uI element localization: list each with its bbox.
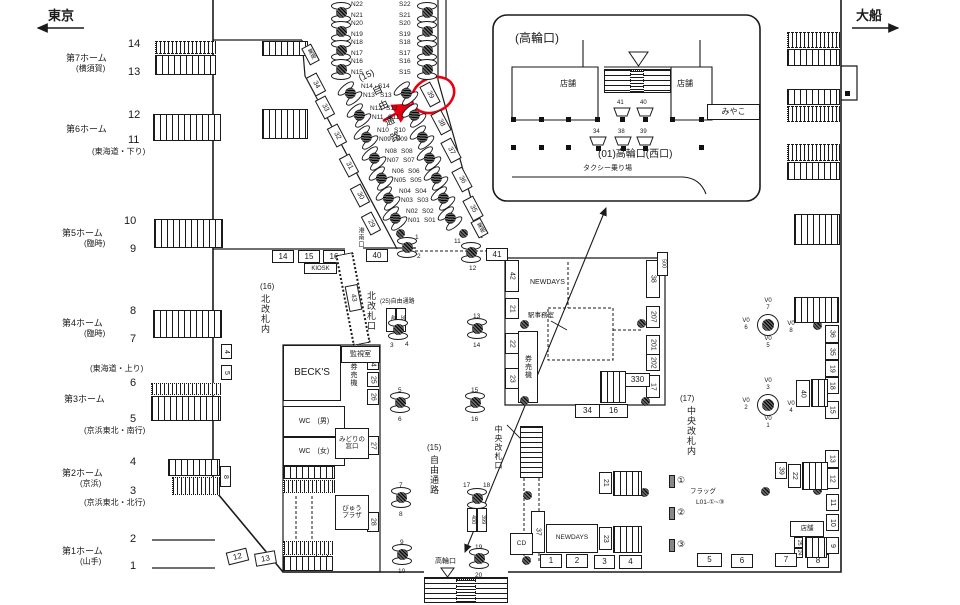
- box-label: 10: [829, 519, 836, 527]
- numbered-box: 25: [794, 537, 803, 548]
- flag-number: ①: [677, 476, 685, 485]
- text-label: 第3ホーム: [64, 394, 105, 405]
- stairs: [168, 459, 220, 476]
- pillar-core: [396, 492, 407, 503]
- pillar-square: [621, 146, 626, 151]
- room-label: 監視室: [350, 351, 371, 358]
- pillar-square: [566, 117, 571, 122]
- numbered-box: 34: [575, 404, 600, 418]
- stairs: [802, 462, 828, 490]
- stairs: [151, 383, 221, 395]
- text-label: 13: [128, 66, 140, 79]
- room: 店舗: [790, 521, 824, 537]
- numbered-box: 399: [477, 508, 487, 532]
- text-label: タクシー乗り場: [583, 165, 632, 173]
- stairs: [630, 70, 644, 92]
- room: みどりの 窓口: [335, 428, 369, 459]
- pillar-dot: [520, 320, 529, 329]
- vertical-text-label: 中央改札内: [686, 406, 695, 456]
- box-label: 37: [446, 145, 456, 155]
- pillar-core: [422, 64, 433, 75]
- box-label: 14: [279, 253, 288, 261]
- pillar-square: [643, 117, 648, 122]
- numbered-box: 22: [505, 333, 519, 354]
- vertical-text-label: 券売機: [350, 363, 357, 387]
- pillar-label: 16: [471, 417, 478, 424]
- box-label: 13: [829, 455, 836, 463]
- pillar-label: S18: [399, 40, 411, 47]
- text-label: (高輪口): [515, 31, 559, 45]
- numbered-box: 207: [646, 306, 660, 328]
- pillar-core: [470, 397, 481, 408]
- text-label: (京浜東北・南行): [84, 426, 145, 435]
- box-label: 35: [829, 348, 836, 356]
- pillar-label: N12: [370, 106, 382, 113]
- pillar-label: 15: [471, 388, 478, 395]
- stairs: [283, 541, 333, 555]
- pillar-label: N09: [379, 137, 391, 144]
- stairs: [600, 371, 626, 403]
- numbered-box: KIOSK: [304, 263, 337, 274]
- room-label: 券売機: [525, 355, 532, 379]
- stairs: [805, 537, 827, 558]
- central-gate: [520, 426, 543, 478]
- room-label: みどりの 窓口: [339, 437, 365, 450]
- vertical-text-label: 中央改札口: [494, 425, 502, 470]
- numbered-box: 26: [367, 389, 379, 405]
- box-label: 40: [373, 252, 382, 260]
- pillar-symbol: [416, 2, 438, 23]
- stairs: [794, 214, 840, 245]
- vertical-text-label: 自由通路: [429, 455, 438, 495]
- pillar-label: S04: [415, 189, 427, 196]
- text-label: 34: [593, 129, 600, 136]
- box-label: 業掲: [474, 222, 484, 234]
- numbered-box: 330: [625, 373, 650, 387]
- box-label: 18: [829, 382, 836, 390]
- takanawa-triangle: [441, 568, 454, 577]
- pillar-square: [620, 117, 625, 122]
- pillar-label: S08: [401, 149, 413, 156]
- room-label: びゅう プラザ: [342, 506, 362, 519]
- numbered-box: 4: [619, 555, 642, 569]
- text-label: NEWDAYS: [530, 279, 565, 287]
- pillar-square: [699, 117, 704, 122]
- box-label: 28: [370, 518, 377, 526]
- pillar-label: 11: [454, 239, 461, 246]
- pillar-label: S07: [403, 158, 415, 165]
- text-label: 5: [130, 413, 136, 426]
- pillar-label: N17: [351, 51, 363, 58]
- pillar-label: 10: [398, 569, 405, 576]
- box-label: 399: [479, 515, 485, 524]
- box-label: 6: [740, 557, 744, 565]
- stairs: [155, 55, 216, 75]
- text-label: フラッグ: [690, 488, 716, 496]
- numbered-box: 15: [298, 250, 320, 263]
- pillar-symbol: [416, 40, 438, 61]
- round-pillar-label: V0 8: [783, 321, 799, 335]
- pillar-label: 9: [400, 540, 404, 547]
- numbered-box: 16: [599, 404, 628, 418]
- numbered-box: 25: [367, 372, 379, 387]
- stairs: [456, 579, 476, 602]
- pillar-label: S01: [424, 218, 436, 225]
- box-label: 9: [829, 544, 836, 548]
- stairs: [787, 32, 840, 48]
- text-label: 第7ホーム: [66, 53, 107, 64]
- numbered-box: 2: [566, 554, 588, 568]
- pillar-square: [511, 117, 516, 122]
- pillar-square: [643, 146, 648, 151]
- room-label: NEWDAYS: [556, 535, 588, 542]
- pillar-label: N04: [399, 189, 411, 196]
- room: NEWDAYS: [546, 524, 598, 553]
- pillar-symbol: [390, 487, 412, 508]
- numbered-box: 10: [826, 514, 839, 531]
- pillar-label: N14: [361, 84, 373, 91]
- box-label: 31: [344, 160, 354, 170]
- room: BECK'S: [283, 345, 341, 401]
- pillar-label: N15: [351, 70, 363, 77]
- room: CD: [510, 533, 533, 555]
- pillar-dot: [459, 229, 468, 238]
- room-label: みやこ: [722, 108, 746, 116]
- box-label: 23: [602, 535, 609, 543]
- text-label: (17): [680, 394, 694, 403]
- pillar-dot: [523, 491, 532, 500]
- box-label: 23: [509, 375, 516, 383]
- pillar-symbol: [330, 40, 352, 61]
- pillar-core: [336, 64, 347, 75]
- numbered-box: 400: [467, 508, 477, 532]
- pillar-symbol: [460, 242, 482, 263]
- pillar-label: 2: [417, 254, 421, 261]
- text-label: 1: [130, 560, 136, 573]
- flag-marker: [669, 539, 675, 552]
- box-label: 12: [232, 552, 243, 562]
- pillar-label: N18: [351, 40, 363, 47]
- pillar-core: [397, 549, 408, 560]
- box-label: 27: [370, 442, 377, 450]
- round-pillar-label: V0 6: [738, 318, 754, 332]
- pillar-core: [472, 493, 483, 504]
- text-label: (臨時): [84, 239, 105, 248]
- pillar-square: [670, 117, 675, 122]
- box-label: 25: [796, 540, 801, 546]
- stairs: [172, 477, 220, 495]
- box-label: 35: [468, 203, 478, 213]
- pillar-label: S15: [399, 70, 411, 77]
- box-label: 39: [425, 89, 435, 99]
- box-label: 29: [366, 218, 376, 228]
- stairs: [787, 106, 840, 122]
- numbered-box: 9: [826, 537, 839, 554]
- pillar-label: N13: [363, 93, 375, 100]
- stairs: [151, 396, 221, 421]
- room-label: CD: [517, 541, 526, 548]
- box-label: 5: [707, 556, 711, 564]
- numbered-box: 23: [505, 368, 519, 389]
- pillar-core: [422, 26, 433, 37]
- pillar-label: N10: [377, 128, 389, 135]
- text-label: 店舗: [560, 79, 576, 88]
- text-label: (横須賀): [76, 64, 105, 73]
- pillar-symbol: [330, 21, 352, 42]
- text-label: 12: [128, 109, 140, 122]
- pillar-label: S16: [399, 59, 411, 66]
- pillar-label: S10: [394, 128, 406, 135]
- pillar-square: [845, 91, 850, 96]
- text-label: 6: [130, 377, 136, 390]
- pillar-dot: [520, 396, 529, 405]
- numbered-box: 8: [220, 466, 231, 487]
- pillar-label: N16: [351, 59, 363, 66]
- pillar-dot: [637, 319, 646, 328]
- box-label: 15: [305, 253, 314, 261]
- box-label: 22: [791, 472, 798, 480]
- numbered-box: 40: [366, 249, 388, 262]
- room: みやこ: [707, 104, 760, 120]
- box-label: 207: [650, 311, 657, 323]
- round-pillar-label: V0 4: [783, 401, 799, 415]
- box-label: 21: [602, 479, 609, 487]
- text-label: 駅事務室: [528, 312, 554, 320]
- pillar-dot: [641, 397, 650, 406]
- pillar-square: [539, 145, 544, 150]
- box-label: 3: [602, 558, 606, 566]
- pillar-label: N08: [385, 149, 397, 156]
- numbered-box: 23: [599, 527, 612, 550]
- numbered-box: 19: [825, 360, 839, 377]
- pillar-label: 1: [415, 235, 419, 242]
- pillar-label: N03: [401, 198, 413, 205]
- flag-number: ③: [677, 540, 685, 549]
- stairs: [262, 109, 308, 139]
- numbered-box: 14: [272, 250, 294, 263]
- box-label: 30: [355, 190, 365, 200]
- box-label: 業掲: [305, 48, 315, 60]
- pillar-label: S17: [399, 51, 411, 58]
- room: びゅう プラザ: [335, 495, 369, 530]
- pillar-label: N11: [372, 115, 383, 122]
- exit-trapezoids: [590, 108, 653, 145]
- numbered-box: 4: [221, 344, 232, 359]
- numbered-box: 5: [697, 553, 722, 567]
- numbered-box: 22: [788, 464, 801, 488]
- pillar-label: S03: [417, 198, 429, 205]
- box-label: 1: [549, 557, 553, 565]
- text-label: 8: [130, 305, 136, 318]
- pillar-label: N01: [408, 218, 420, 225]
- pillar-label: 12: [469, 266, 476, 273]
- pillar-label: N22: [351, 2, 363, 9]
- round-pillar-label: V0 5: [760, 336, 776, 350]
- pillar-label: N07: [387, 158, 399, 165]
- text-label: 4: [130, 456, 136, 469]
- pillar-label: 13: [473, 314, 480, 321]
- terminal-tokyo: 東京: [48, 8, 74, 23]
- pillar-core: [402, 242, 413, 253]
- numbered-box: 6: [731, 554, 753, 568]
- room: 監視室: [341, 346, 380, 363]
- box-label: 36: [457, 174, 467, 184]
- text-label: 第5ホーム: [62, 228, 103, 239]
- numbered-box: 21: [599, 472, 612, 494]
- box-label: 34: [311, 79, 321, 89]
- round-pillar-label: V0 2: [738, 398, 754, 412]
- text-label: 第6ホーム: [66, 124, 107, 135]
- numbered-box: 35: [825, 343, 839, 360]
- box-label: 8: [222, 475, 229, 479]
- station-map-diagram: 東京 大船 14第7ホーム(横須賀)1312第6ホーム11(東海道・下り)10第…: [0, 0, 960, 605]
- numbered-box: 202: [646, 354, 660, 371]
- pillar-label: S05: [410, 178, 422, 185]
- pillar-label: S12: [386, 106, 398, 113]
- box-label: 41: [493, 251, 502, 259]
- pillar-label: N20: [351, 21, 363, 28]
- pillar-core: [472, 323, 483, 334]
- stairs: [283, 556, 333, 571]
- numbered-box: 3: [594, 555, 615, 569]
- stairs: [283, 466, 335, 479]
- pillar-label: S09: [396, 137, 408, 144]
- pillar-symbol: [466, 318, 488, 339]
- room: 券売機: [518, 331, 538, 403]
- pillar-label: N21: [351, 13, 363, 20]
- text-label: (01)高輪口(西口): [598, 149, 672, 161]
- terminal-ofuna: 大船: [856, 8, 882, 23]
- box-label: 13: [260, 554, 270, 563]
- pillar-label: S06: [408, 169, 420, 176]
- box-label: 21: [509, 305, 516, 313]
- pillar-core: [336, 7, 347, 18]
- stairs: [154, 219, 223, 248]
- box-label: 5: [223, 371, 230, 375]
- pillar-label: 18: [483, 483, 490, 490]
- pillar-label: 14: [473, 343, 480, 350]
- text-label: (東海道・上り): [90, 364, 143, 373]
- pillar-core: [393, 324, 404, 335]
- pillar-dot: [761, 487, 770, 496]
- text-label: 高輪口: [435, 558, 456, 566]
- box-label: 15: [829, 406, 836, 414]
- text-label: 10: [124, 215, 136, 228]
- stairs: [794, 297, 839, 323]
- pillar-label: 7: [399, 483, 403, 490]
- vertical-text-label: 港南口: [357, 227, 363, 248]
- box-label: 26: [370, 393, 377, 401]
- box-label: 25: [370, 376, 377, 384]
- pillar-square: [511, 145, 516, 150]
- pillar-label: N06: [392, 169, 404, 176]
- text-label: 7: [130, 333, 136, 346]
- pillar-label: 3: [390, 343, 394, 350]
- pillar-label: 5: [398, 388, 402, 395]
- round-pillar-label: V0 1: [760, 416, 776, 430]
- box-label: 202: [650, 357, 657, 369]
- box-label: 33: [320, 102, 330, 112]
- pillar-core: [422, 45, 433, 56]
- pillar-label: S20: [399, 21, 411, 28]
- box-label: 37: [535, 528, 542, 536]
- box-label: 16: [609, 407, 618, 415]
- numbered-box: 5: [221, 365, 232, 380]
- stairs: [787, 162, 840, 180]
- text-label: (25)自由通路: [380, 299, 415, 306]
- numbered-box: 39: [775, 462, 787, 479]
- box-label: 500: [660, 259, 666, 268]
- pillar-core: [395, 397, 406, 408]
- room-label: 店舗: [801, 526, 814, 533]
- round-pillar-label: V0 7: [760, 298, 776, 312]
- box-label: 42: [509, 272, 516, 280]
- box-label: 22: [509, 340, 516, 348]
- round-pillar-symbol: [757, 314, 779, 336]
- flag-marker: [669, 507, 675, 520]
- pillar-symbol: [389, 392, 411, 413]
- round-pillar-label: V0 3: [760, 378, 776, 392]
- stairs: [613, 526, 642, 553]
- text-label: (京浜東北・北行): [84, 498, 145, 507]
- pillar-dot: [396, 229, 405, 238]
- pillar-square: [596, 146, 601, 151]
- box-label: 4: [223, 350, 230, 354]
- text-label: 2: [130, 533, 136, 546]
- stairs: [283, 480, 335, 493]
- pillar-symbol: [416, 21, 438, 42]
- pillar-label: S21: [399, 13, 411, 20]
- text-label: 店舗: [677, 79, 693, 88]
- numbered-box: 37: [531, 511, 545, 553]
- pillar-label: 19: [475, 545, 482, 552]
- pillar-label: S14: [378, 84, 390, 91]
- stairs: [787, 49, 840, 66]
- pillar-label: S11: [388, 115, 399, 122]
- numbered-box: 7: [775, 553, 797, 567]
- pillar-symbol: [466, 488, 488, 509]
- text-label: 9: [130, 243, 136, 256]
- text-label: 第2ホーム: [62, 468, 103, 479]
- text-label: 41: [617, 100, 624, 107]
- stairs: [811, 379, 828, 407]
- room-label: BECK'S: [294, 368, 330, 378]
- pillar-label: N19: [351, 32, 363, 39]
- text-label: 第4ホーム: [62, 318, 103, 329]
- stairs: [787, 144, 840, 161]
- box-label: 201: [650, 339, 657, 351]
- pillar-square: [539, 117, 544, 122]
- pillar-core: [336, 26, 347, 37]
- text-label: (京浜): [80, 479, 101, 488]
- box-label: 40: [800, 390, 807, 398]
- pillar-label: N05: [394, 178, 406, 185]
- text-label: L01-①~③: [696, 499, 724, 507]
- box-label: 34: [583, 407, 592, 415]
- numbered-box: 500: [657, 252, 668, 276]
- text-label: (16): [260, 282, 274, 291]
- pillar-symbol: [416, 59, 438, 80]
- box-label: 19: [829, 365, 836, 373]
- pillar-square: [595, 117, 600, 122]
- room-label: WC (女): [299, 448, 329, 455]
- pillar-symbol: [330, 59, 352, 80]
- box-label: 43: [349, 293, 357, 302]
- box-label: 12: [829, 475, 836, 483]
- flag-number: ②: [677, 508, 685, 517]
- pillar-label: S02: [422, 209, 434, 216]
- pillar-label: S19: [399, 32, 411, 39]
